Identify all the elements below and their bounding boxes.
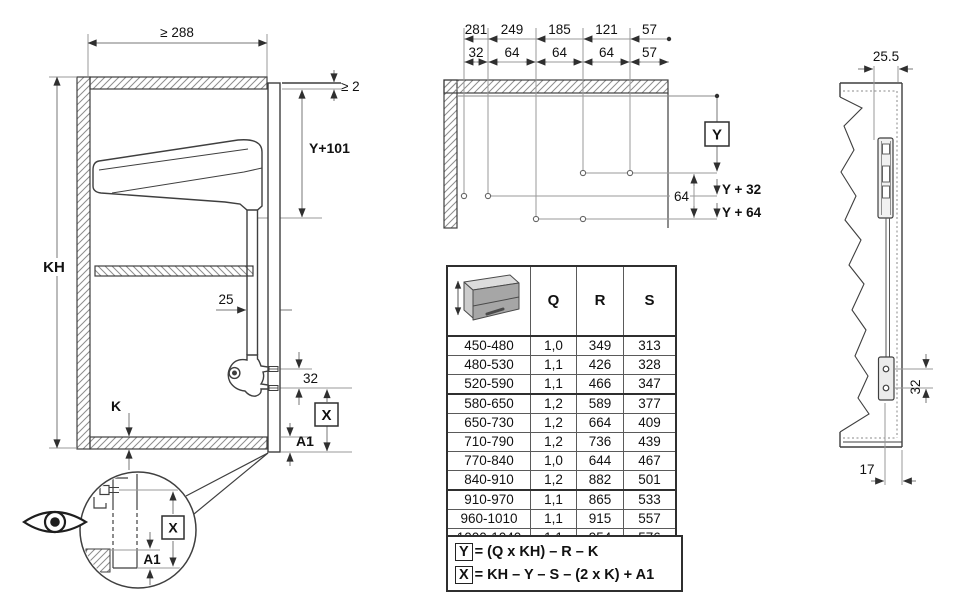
cell-kh: 910-970 (447, 490, 531, 510)
cell-r: 349 (577, 336, 624, 356)
formula-x-symbol: X (455, 566, 473, 584)
col-header-r: R (577, 266, 624, 336)
lift-rail (878, 138, 893, 218)
dim-row-1 (464, 37, 671, 41)
y-plus-64-label: Y + 64 (722, 205, 762, 220)
table-row: 710-7901,2736439 (447, 433, 676, 452)
col-header-q: Q (531, 266, 577, 336)
table-row: 480-5301,1426328 (447, 356, 676, 375)
table-row: 770-8401,0644467 (447, 452, 676, 471)
cell-s: 377 (624, 394, 677, 414)
table-row: 960-10101,1915557 (447, 510, 676, 529)
cell-kh: 650-730 (447, 414, 531, 433)
col-header-s: S (624, 266, 677, 336)
svg-text:185: 185 (548, 22, 571, 37)
svg-text:121: 121 (595, 22, 618, 37)
cell-q: 1,0 (531, 336, 577, 356)
cell-s: 347 (624, 375, 677, 395)
cell-kh: 770-840 (447, 452, 531, 471)
cabinet-height-icon-cell (447, 266, 531, 336)
cell-s: 328 (624, 356, 677, 375)
cell-r: 664 (577, 414, 624, 433)
torn-edge (840, 97, 869, 432)
dim-x: X (321, 407, 331, 424)
cell-r: 882 (577, 471, 624, 491)
cell-q: 1,2 (531, 471, 577, 491)
dim-plate-screw-spacing: 32 (908, 379, 923, 394)
front-door (268, 83, 280, 452)
right-dimensions (858, 66, 933, 485)
panel-structure (444, 80, 668, 228)
cell-kh: 520-590 (447, 375, 531, 395)
top-panel (90, 77, 267, 89)
formula-box: Y= (Q x KH) – R – K X= KH – Y – S – (2 x… (446, 535, 683, 592)
table-row: 650-7301,2664409 (447, 414, 676, 433)
svg-text:249: 249 (501, 22, 524, 37)
cabinet-structure (77, 77, 341, 452)
formula-y-symbol: Y (455, 543, 473, 561)
y-plus-32-label: Y + 32 (722, 182, 761, 197)
row-spacing-label: 64 (674, 189, 690, 204)
cell-r: 736 (577, 433, 624, 452)
cell-r: 466 (577, 375, 624, 395)
svg-text:64: 64 (504, 45, 520, 60)
formula-x-expression: = KH – Y – S – (2 x K) + A1 (475, 567, 654, 583)
cell-q: 1,0 (531, 452, 577, 471)
svg-text:57: 57 (642, 22, 657, 37)
cell-q: 1,1 (531, 490, 577, 510)
formula-x: X= KH – Y – S – (2 x K) + A1 (455, 566, 681, 584)
eye-icon (24, 512, 86, 532)
cell-s: 439 (624, 433, 677, 452)
cell-s: 313 (624, 336, 677, 356)
cell-q: 1,1 (531, 356, 577, 375)
table-row: 580-6501,2589377 (447, 394, 676, 414)
dim-width-min: ≥ 288 (160, 25, 194, 40)
dim-a1: A1 (296, 433, 314, 449)
detail-a1-label: A1 (143, 552, 161, 567)
detail-callout: X A1 (24, 453, 268, 588)
cell-r: 589 (577, 394, 624, 414)
technical-installation-sheet: X A1 ≥ 288 KH ≥ 2 Y+101 25 32 K X A1 (0, 0, 960, 616)
table-row: 840-9101,2882501 (447, 471, 676, 491)
drilling-pattern-drawing: Y 64 Y + 32 Y + 64 281 249 185 121 57 32… (430, 10, 760, 255)
back-panel (77, 77, 90, 449)
plate-hole-upper (883, 366, 889, 372)
dim-screw-spacing: 32 (303, 371, 318, 386)
mounting-plate (879, 357, 895, 400)
cell-kh: 960-1010 (447, 510, 531, 529)
dim-panel-thickness: K (111, 398, 121, 414)
dim-arm-height: Y+101 (309, 140, 350, 156)
cell-kh: 840-910 (447, 471, 531, 491)
cell-r: 644 (577, 452, 624, 471)
cell-kh: 710-790 (447, 433, 531, 452)
svg-text:64: 64 (599, 45, 615, 60)
formula-y: Y= (Q x KH) – R – K (455, 543, 681, 561)
cell-r: 915 (577, 510, 624, 529)
cell-q: 1,1 (531, 510, 577, 529)
dimension-lines (49, 34, 352, 470)
dim-row-1-labels: 281 249 185 121 57 (465, 22, 657, 37)
bottom-panel (90, 437, 267, 449)
y-label: Y (712, 127, 722, 144)
svg-text:57: 57 (642, 45, 657, 60)
cell-q: 1,1 (531, 375, 577, 395)
table-row: 450-4801,0349313 (447, 336, 676, 356)
svg-text:64: 64 (552, 45, 568, 60)
cell-kh: 450-480 (447, 336, 531, 356)
dim-row-2-labels: 32 64 64 64 57 (468, 45, 657, 60)
cell-kh: 480-530 (447, 356, 531, 375)
cell-q: 1,2 (531, 394, 577, 414)
svg-text:281: 281 (465, 22, 488, 37)
door-mounting-drawing: 25.5 32 17 (820, 30, 960, 500)
plate-hole-lower (883, 385, 889, 391)
table-header-row: Q R S (447, 266, 676, 336)
cabinet-height-icon (449, 268, 529, 334)
dim-front-gap: 25.5 (873, 49, 899, 64)
cell-q: 1,2 (531, 433, 577, 452)
cell-q: 1,2 (531, 414, 577, 433)
cell-s: 557 (624, 510, 677, 529)
shelf (95, 266, 253, 276)
dim-arm-clearance: 25 (218, 292, 233, 307)
svg-text:32: 32 (468, 45, 483, 60)
dim-cabinet-height: KH (43, 259, 65, 276)
cell-r: 865 (577, 490, 624, 510)
cell-r: 426 (577, 356, 624, 375)
cabinet-side-section-drawing: X A1 ≥ 288 KH ≥ 2 Y+101 25 32 K X A1 (0, 0, 380, 616)
dim-top-gap: ≥ 2 (341, 79, 360, 94)
dim-bottom-offset: 17 (859, 462, 874, 477)
table-row: 910-9701,1865533 (447, 490, 676, 510)
table-row: 520-5901,1466347 (447, 375, 676, 395)
detail-x-label: X (168, 520, 178, 536)
kh-spec-table: Q R S 450-4801,0349313 480-5301,1426328 … (446, 265, 677, 549)
telescopic-arm (886, 218, 890, 358)
cell-s: 501 (624, 471, 677, 491)
cell-s: 467 (624, 452, 677, 471)
cell-kh: 580-650 (447, 394, 531, 414)
formula-y-expression: = (Q x KH) – R – K (475, 544, 599, 560)
cell-s: 533 (624, 490, 677, 510)
cell-s: 409 (624, 414, 677, 433)
